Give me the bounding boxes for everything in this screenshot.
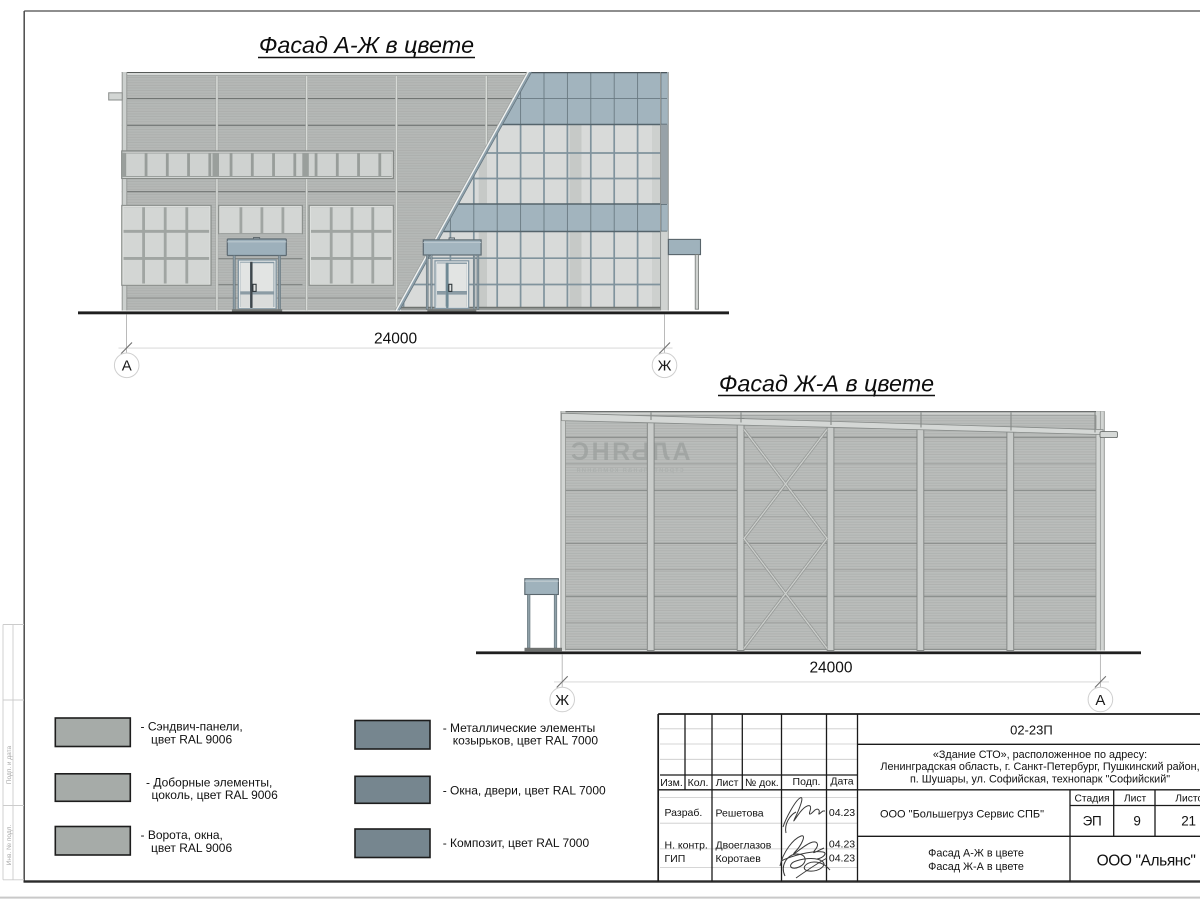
svg-text:А: А [1095, 692, 1105, 709]
svg-text:АЛЬЯНС: АЛЬЯНС [569, 438, 691, 466]
svg-text:строительная компания: строительная компания [575, 465, 683, 474]
svg-text:А: А [122, 358, 132, 375]
svg-text:Разраб.: Разраб. [665, 807, 703, 819]
svg-text:ООО "Большегруз Сервис СПБ": ООО "Большегруз Сервис СПБ" [880, 809, 1044, 821]
svg-text:Изм.: Изм. [660, 777, 683, 789]
svg-text:№ док.: № док. [745, 777, 779, 789]
svg-text:ГИП: ГИП [665, 853, 686, 865]
svg-text:цвет RAL 9006: цвет RAL 9006 [151, 732, 232, 746]
svg-text:Фасад А-Ж в цвете: Фасад А-Ж в цвете [928, 847, 1024, 859]
svg-text:«Здание СТО», расположенное по: «Здание СТО», расположенное по адресу: [933, 749, 1147, 761]
svg-text:Ж: Ж [555, 692, 569, 709]
svg-text:козырьков, цвет RAL 7000: козырьков, цвет RAL 7000 [453, 734, 599, 748]
svg-text:Фасад А-Ж в цвете: Фасад А-Ж в цвете [259, 32, 474, 58]
svg-text:Стадия: Стадия [1074, 793, 1109, 804]
svg-text:04.23: 04.23 [829, 852, 855, 864]
svg-text:04.23: 04.23 [829, 807, 855, 819]
svg-text:Фасад Ж-А в цвете: Фасад Ж-А в цвете [928, 861, 1024, 873]
svg-text:цоколь, цвет RAL 9006: цоколь, цвет RAL 9006 [152, 788, 279, 802]
svg-text:- Композит, цвет RAL 7000: - Композит, цвет RAL 7000 [443, 836, 590, 850]
svg-text:Двоеглазов: Двоеглазов [716, 840, 772, 852]
svg-text:Листов: Листов [1175, 793, 1200, 804]
svg-text:п. Шушары, ул. Софийская, техн: п. Шушары, ул. Софийская, технопарк "Соф… [910, 773, 1170, 785]
svg-text:Подп. и дата: Подп. и дата [6, 745, 13, 784]
svg-text:02-23П: 02-23П [1010, 722, 1053, 737]
svg-text:Н. контр.: Н. контр. [665, 840, 708, 852]
svg-text:9: 9 [1133, 814, 1140, 829]
svg-text:24000: 24000 [374, 331, 417, 348]
svg-text:цвет RAL 9006: цвет RAL 9006 [151, 841, 232, 855]
svg-text:- Окна, двери, цвет RAL 7000: - Окна, двери, цвет RAL 7000 [443, 783, 606, 797]
svg-text:Фасад Ж-А в цвете: Фасад Ж-А в цвете [719, 370, 934, 396]
svg-text:24000: 24000 [809, 660, 852, 677]
svg-text:Ленинградская область, г. Санк: Ленинградская область, г. Санкт-Петербур… [880, 761, 1199, 773]
svg-text:Лист: Лист [716, 777, 739, 789]
svg-text:ЭП: ЭП [1083, 814, 1102, 829]
svg-text:Подп.: Подп. [793, 776, 821, 788]
svg-text:04.23: 04.23 [829, 839, 855, 851]
svg-text:Дата: Дата [830, 776, 853, 788]
svg-text:Инв. № подл.: Инв. № подл. [6, 825, 13, 866]
svg-text:Кол.: Кол. [688, 777, 709, 789]
svg-text:Лист: Лист [1124, 793, 1147, 804]
svg-text:ООО "Альянс": ООО "Альянс" [1097, 853, 1196, 870]
svg-text:21: 21 [1181, 814, 1195, 829]
svg-text:Ж: Ж [658, 358, 672, 375]
svg-text:Решетова: Решетова [716, 808, 764, 820]
svg-text:Коротаев: Коротаев [716, 853, 762, 865]
